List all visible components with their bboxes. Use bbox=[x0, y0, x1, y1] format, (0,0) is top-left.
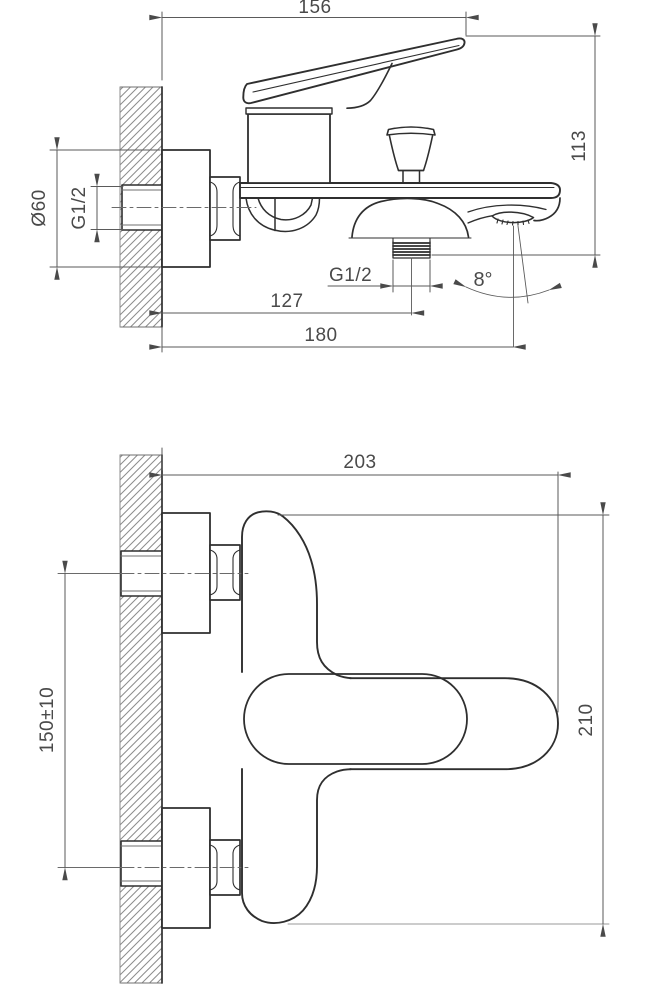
dim-spout-angle: 8° bbox=[473, 269, 492, 291]
faucet-technical-drawing: 156 113 Ø60 G1/2 G1/2 8° 127 180 bbox=[0, 0, 660, 1000]
dim-handle-reach: 156 bbox=[298, 0, 331, 18]
dim-total-width: 203 bbox=[343, 452, 376, 473]
spout-tip bbox=[468, 198, 560, 225]
faucet-technical-drawing-page: 156 113 Ø60 G1/2 G1/2 8° 127 180 bbox=[0, 0, 660, 1000]
front-view: 203 210 150±10 bbox=[37, 448, 609, 983]
dim-outlet-thread: G1/2 bbox=[329, 265, 372, 286]
mixer-body-front bbox=[242, 511, 558, 923]
lever-handle-side bbox=[243, 38, 464, 108]
dim-height-113: 113 bbox=[569, 130, 590, 162]
dim-wall-to-spout-tip: 180 bbox=[304, 325, 337, 346]
escutcheon-side bbox=[162, 150, 210, 267]
wall-section-front bbox=[120, 455, 162, 983]
dim-wall-to-outlet: 127 bbox=[270, 291, 303, 312]
cartridge-body bbox=[246, 108, 332, 183]
handle-front-face bbox=[244, 674, 467, 764]
outlet-boss bbox=[349, 198, 471, 258]
hex-nut-side bbox=[210, 177, 240, 240]
deck-slab bbox=[240, 183, 560, 198]
side-view: 156 113 Ø60 G1/2 G1/2 8° 127 180 bbox=[29, 0, 600, 352]
dim-wall-inlet-thread: G1/2 bbox=[69, 186, 90, 229]
inlet-elbow-under-deck bbox=[246, 198, 320, 231]
hex-nut-top-front bbox=[210, 545, 240, 600]
dim-escutcheon-diameter: Ø60 bbox=[29, 189, 50, 226]
dim-total-height: 210 bbox=[576, 703, 597, 736]
dim-inlet-spacing: 150±10 bbox=[37, 687, 58, 753]
outlet-thread bbox=[393, 241, 430, 258]
diverter-knob bbox=[387, 127, 435, 183]
